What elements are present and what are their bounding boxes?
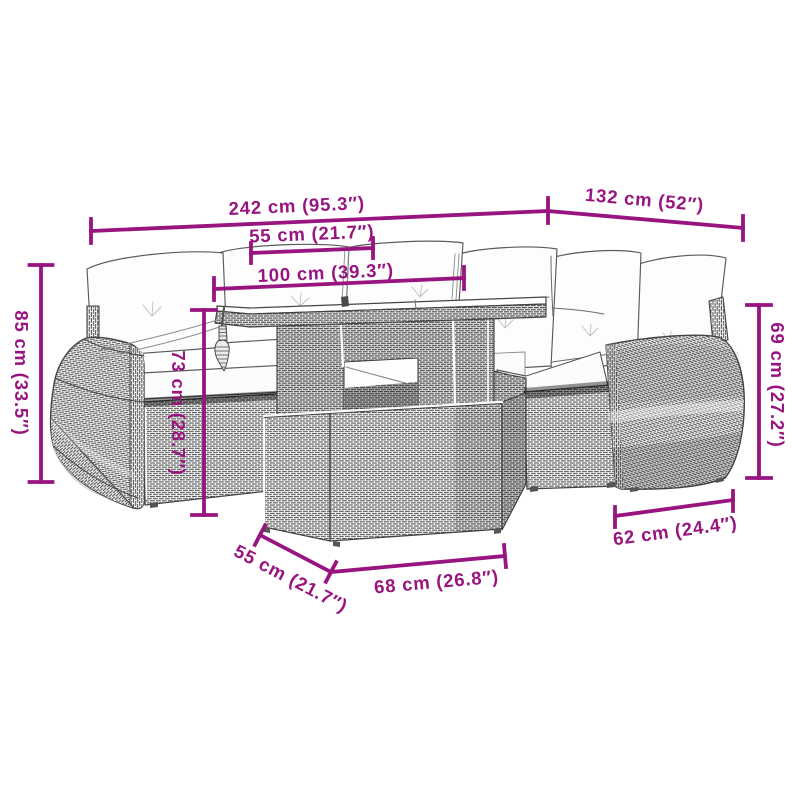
svg-text:73 cm (28.7″): 73 cm (28.7″) [168, 350, 189, 475]
svg-text:69 cm (27.2″): 69 cm (27.2″) [767, 322, 788, 447]
svg-text:85 cm (33.5″): 85 cm (33.5″) [11, 310, 32, 435]
